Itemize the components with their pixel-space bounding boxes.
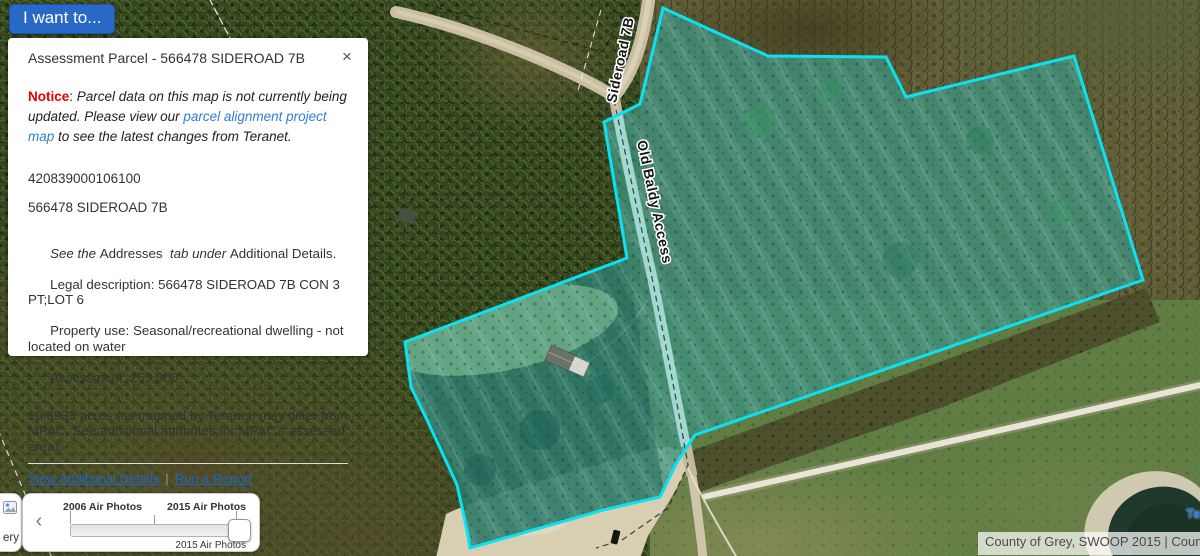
panel-divider: [28, 463, 348, 464]
parcel-details: See the Addresses tab under Additional D…: [28, 230, 348, 401]
gallery-button[interactable]: ery: [0, 493, 22, 552]
panel-title: Assessment Parcel - 566478 SIDEROAD 7B: [28, 50, 348, 66]
slider-label-2015: 2015 Air Photos: [167, 501, 246, 513]
legal-description: Legal description: 566478 SIDEROAD 7B CO…: [28, 277, 344, 308]
map-attribution: County of Grey, SWOOP 2015 | County of: [978, 532, 1200, 555]
i-want-to-button[interactable]: I want to...: [9, 4, 115, 34]
view-additional-details-link[interactable]: View Additional Details: [28, 471, 159, 486]
slider-handle[interactable]: [228, 519, 251, 542]
property-use: Property use: Seasonal/recreational dwel…: [28, 323, 347, 354]
run-a-report-link[interactable]: Run a Report: [175, 471, 252, 486]
slider-label-2006: 2006 Air Photos: [63, 501, 142, 513]
panel-links: View Additional Details|Run a Report: [28, 471, 348, 486]
slider-current-value: 2015 Air Photos: [175, 540, 246, 551]
slider-tick-left: [70, 511, 71, 524]
parcel-address: 566478 SIDEROAD 7B: [28, 200, 348, 215]
slider-track[interactable]: [70, 524, 244, 537]
acreage-note: 10.8933 acres (as mapped by Teranet, may…: [28, 408, 348, 455]
map-viewer-app: Sideroad 7B Old Baldy Access I want to..…: [0, 0, 1200, 556]
gallery-image-icon: [3, 501, 17, 519]
notice-label: Notice: [28, 89, 69, 104]
slider-tick-middle: [154, 515, 155, 524]
link-separator: |: [165, 471, 168, 486]
assessment-parcel-panel: Assessment Parcel - 566478 SIDEROAD 7B ×…: [8, 38, 368, 356]
cabin: [397, 208, 416, 225]
edge-link-fragment[interactable]: Te: [1186, 506, 1200, 521]
assessment-value: Assessment: 255,000: [50, 370, 178, 385]
close-icon[interactable]: ×: [338, 48, 356, 66]
parcel-number: 420839000106100: [28, 171, 348, 186]
air-photos-slider-panel: ‹ 2006 Air Photos 2015 Air Photos 2015 A…: [22, 493, 260, 552]
gallery-label: ery: [3, 532, 19, 544]
notice-text: Notice: Parcel data on this map is not c…: [28, 87, 348, 147]
collapse-chevron-icon[interactable]: ‹: [31, 508, 47, 534]
